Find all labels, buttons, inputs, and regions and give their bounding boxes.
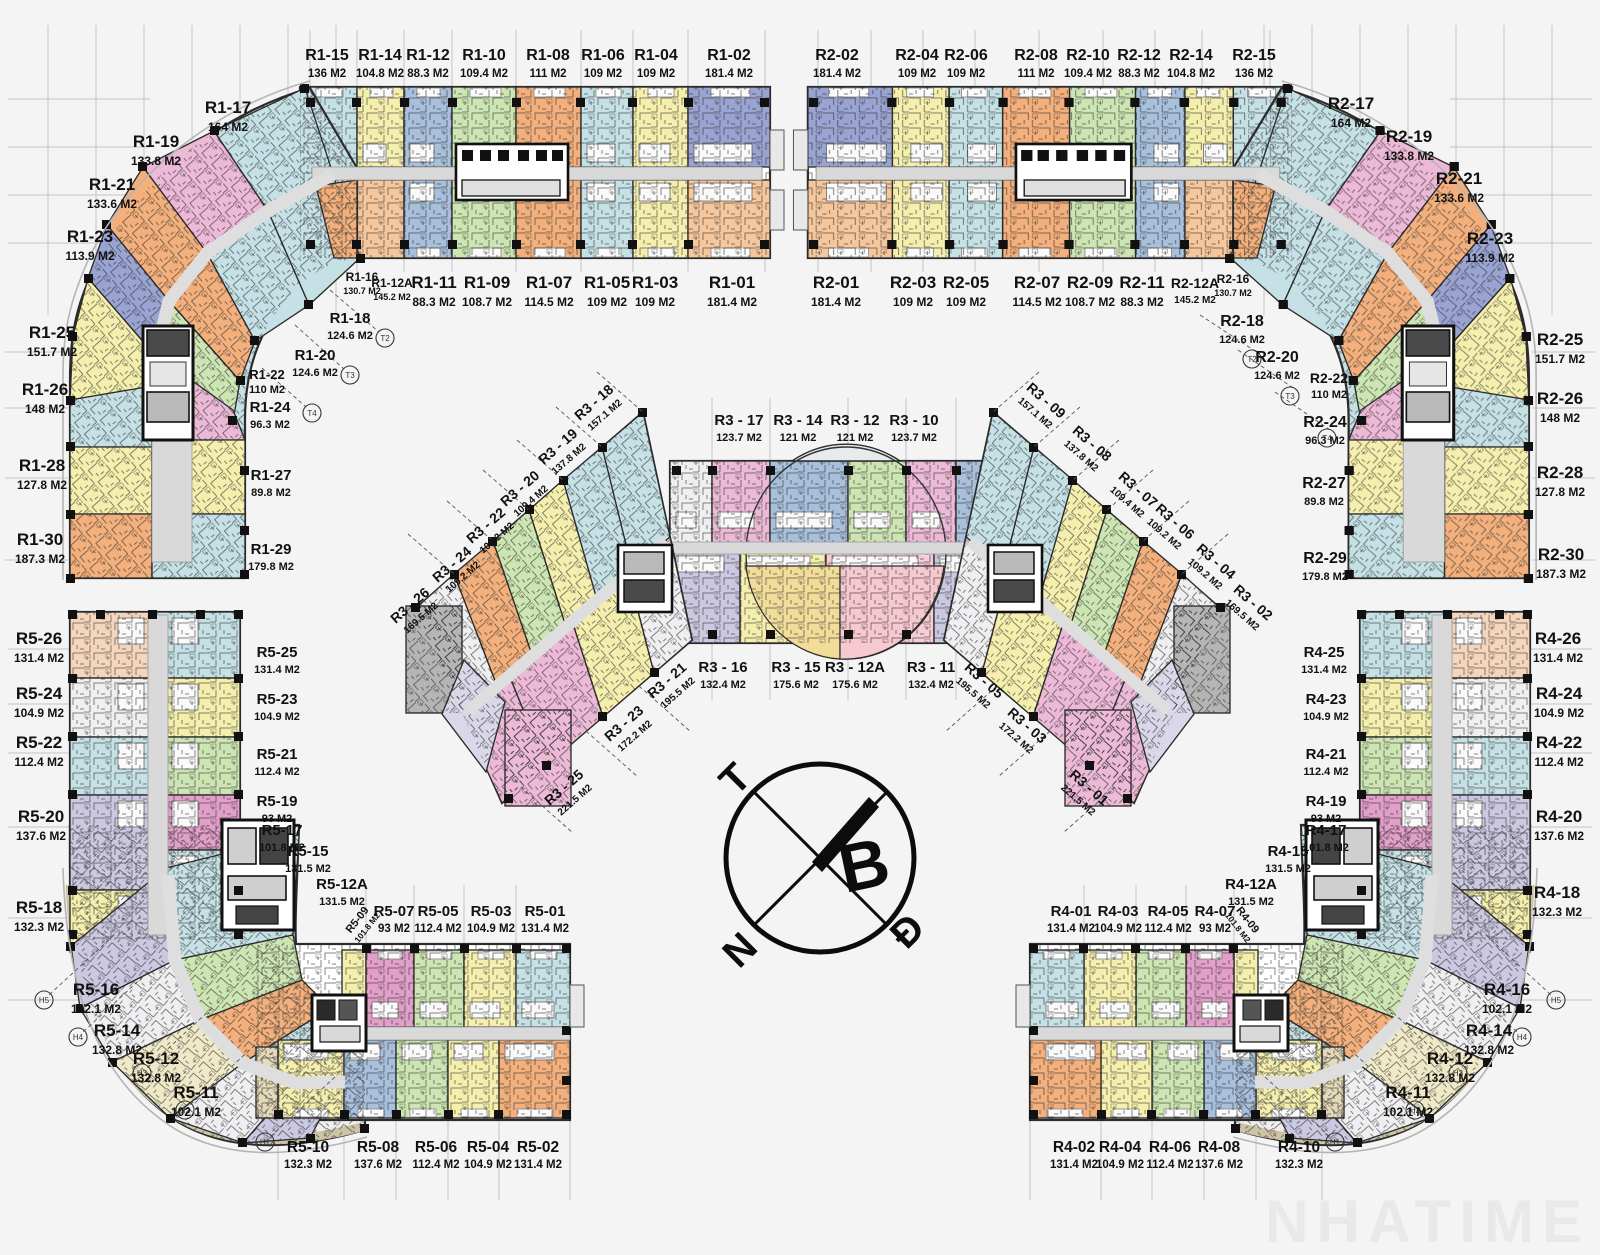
svg-text:104.8 M2: 104.8 M2 (1167, 68, 1215, 80)
svg-text:R1-15: R1-15 (305, 47, 349, 64)
svg-text:R2-04: R2-04 (895, 47, 939, 64)
svg-text:R4-25: R4-25 (1304, 644, 1345, 661)
svg-text:R2-20: R2-20 (1255, 349, 1299, 366)
svg-text:110 M2: 110 M2 (249, 384, 285, 396)
svg-text:R4-23: R4-23 (1306, 691, 1347, 708)
svg-text:111 M2: 111 M2 (1017, 68, 1054, 80)
svg-text:132.3 M2: 132.3 M2 (284, 1159, 332, 1171)
svg-text:88.3 M2: 88.3 M2 (407, 68, 449, 80)
svg-text:R5-21: R5-21 (257, 746, 298, 763)
svg-text:108.7 M2: 108.7 M2 (462, 295, 512, 309)
svg-text:R5-17: R5-17 (262, 822, 303, 839)
svg-text:R4-21: R4-21 (1306, 746, 1347, 763)
svg-text:121 M2: 121 M2 (837, 432, 874, 444)
svg-text:R2-23: R2-23 (1467, 229, 1513, 248)
svg-text:R5-10: R5-10 (287, 1139, 329, 1156)
svg-text:124.6 M2: 124.6 M2 (327, 330, 373, 342)
svg-text:89.8 M2: 89.8 M2 (1304, 496, 1344, 508)
svg-text:112.4 M2: 112.4 M2 (254, 766, 299, 778)
svg-text:145.2 M2: 145.2 M2 (373, 292, 411, 302)
svg-text:T2: T2 (380, 334, 390, 343)
svg-text:132.3 M2: 132.3 M2 (14, 920, 64, 934)
svg-text:R2-08: R2-08 (1014, 47, 1058, 64)
svg-text:R1-07: R1-07 (526, 273, 572, 292)
svg-text:93 M2: 93 M2 (1199, 923, 1231, 935)
svg-text:R5-03: R5-03 (471, 903, 512, 920)
svg-text:R1-06: R1-06 (581, 47, 625, 64)
svg-text:R5-24: R5-24 (16, 684, 63, 703)
svg-text:109.4 M2: 109.4 M2 (1064, 68, 1112, 80)
svg-text:93 M2: 93 M2 (378, 923, 410, 935)
svg-text:113.9 M2: 113.9 M2 (1465, 251, 1515, 265)
svg-text:R1-23: R1-23 (67, 227, 113, 246)
svg-text:121 M2: 121 M2 (780, 432, 817, 444)
svg-text:R1-29: R1-29 (251, 541, 292, 558)
svg-text:132.4 M2: 132.4 M2 (700, 679, 746, 691)
svg-text:96.3 M2: 96.3 M2 (250, 419, 290, 431)
svg-text:133.8 M2: 133.8 M2 (131, 154, 181, 168)
svg-text:181.4 M2: 181.4 M2 (707, 295, 757, 309)
svg-text:124.6 M2: 124.6 M2 (1219, 334, 1265, 346)
svg-text:104.9 M2: 104.9 M2 (1096, 1159, 1144, 1171)
svg-text:R1-01: R1-01 (709, 273, 755, 292)
svg-text:R1-24: R1-24 (250, 399, 292, 416)
svg-text:104.9 M2: 104.9 M2 (467, 923, 515, 935)
svg-text:R2-10: R2-10 (1066, 47, 1110, 64)
svg-text:131.5 M2: 131.5 M2 (285, 863, 331, 875)
svg-text:H5: H5 (39, 996, 50, 1005)
svg-text:113.9 M2: 113.9 M2 (65, 249, 115, 263)
svg-text:124.6 M2: 124.6 M2 (292, 367, 338, 379)
svg-text:109 M2: 109 M2 (947, 68, 985, 80)
svg-text:R2-28: R2-28 (1537, 463, 1583, 482)
svg-text:R1-05: R1-05 (584, 273, 630, 292)
svg-text:R2-12A: R2-12A (1171, 275, 1219, 291)
svg-text:R5-07: R5-07 (374, 903, 415, 920)
svg-text:127.8 M2: 127.8 M2 (17, 478, 67, 492)
svg-text:R2-18: R2-18 (1220, 313, 1264, 330)
svg-text:187.3 M2: 187.3 M2 (15, 552, 65, 566)
svg-text:R4-08: R4-08 (1198, 1139, 1241, 1156)
svg-text:R3 - 16: R3 - 16 (698, 659, 747, 676)
svg-text:R1-12A: R1-12A (371, 276, 413, 290)
svg-text:111 M2: 111 M2 (529, 68, 566, 80)
svg-text:R2-11: R2-11 (1119, 273, 1164, 292)
svg-text:145.2 M2: 145.2 M2 (1174, 295, 1216, 306)
svg-text:R2-22: R2-22 (1310, 370, 1348, 386)
svg-text:123.7 M2: 123.7 M2 (716, 432, 762, 444)
svg-text:H1: H1 (1330, 1138, 1341, 1147)
svg-text:110 M2: 110 M2 (1311, 389, 1347, 401)
svg-text:133.6 M2: 133.6 M2 (87, 197, 137, 211)
svg-text:R1-25: R1-25 (29, 323, 75, 342)
svg-text:R5-14: R5-14 (94, 1021, 141, 1040)
svg-text:131.4 M2: 131.4 M2 (1533, 651, 1583, 665)
svg-text:R1-30: R1-30 (17, 530, 63, 549)
svg-text:R5-08: R5-08 (357, 1139, 400, 1156)
svg-text:R2-15: R2-15 (1232, 47, 1276, 64)
svg-text:R1-14: R1-14 (358, 47, 402, 64)
svg-text:R4-05: R4-05 (1148, 903, 1189, 920)
svg-text:104.9 M2: 104.9 M2 (1303, 711, 1349, 723)
svg-text:109 M2: 109 M2 (635, 295, 675, 309)
svg-text:136 M2: 136 M2 (1235, 68, 1273, 80)
svg-text:R5-06: R5-06 (415, 1139, 458, 1156)
svg-text:148 M2: 148 M2 (1540, 411, 1580, 425)
svg-text:131.4 M2: 131.4 M2 (1047, 923, 1095, 935)
svg-text:R2-16: R2-16 (1217, 272, 1250, 286)
svg-text:131.4 M2: 131.4 M2 (1050, 1159, 1098, 1171)
svg-text:181.4 M2: 181.4 M2 (811, 295, 861, 309)
svg-text:109 M2: 109 M2 (584, 68, 622, 80)
svg-text:109 M2: 109 M2 (946, 295, 986, 309)
svg-text:R5-16: R5-16 (73, 980, 119, 999)
svg-text:R3 - 15: R3 - 15 (771, 659, 820, 676)
svg-text:R4-16: R4-16 (1484, 980, 1530, 999)
svg-text:89.8 M2: 89.8 M2 (251, 487, 291, 499)
svg-text:112.4 M2: 112.4 M2 (14, 755, 64, 769)
svg-text:R3 - 12: R3 - 12 (830, 412, 879, 429)
svg-text:H4: H4 (1517, 1033, 1528, 1042)
svg-text:R2-14: R2-14 (1169, 47, 1213, 64)
svg-text:R4-01: R4-01 (1051, 903, 1092, 920)
svg-text:88.3 M2: 88.3 M2 (1120, 295, 1164, 309)
svg-text:R5-12A: R5-12A (316, 876, 368, 893)
svg-text:114.5 M2: 114.5 M2 (1012, 295, 1062, 309)
svg-text:164 M2: 164 M2 (208, 120, 248, 134)
svg-text:R1-10: R1-10 (462, 47, 506, 64)
svg-text:R4-20: R4-20 (1536, 807, 1582, 826)
svg-text:108.7 M2: 108.7 M2 (1065, 295, 1115, 309)
svg-text:R4-19: R4-19 (1306, 793, 1347, 810)
svg-text:R4-18: R4-18 (1534, 883, 1580, 902)
svg-text:131.4 M2: 131.4 M2 (514, 1159, 562, 1171)
svg-text:131.5 M2: 131.5 M2 (319, 896, 365, 908)
svg-text:R1-09: R1-09 (464, 273, 510, 292)
svg-text:R5-18: R5-18 (16, 898, 62, 917)
svg-text:R4-22: R4-22 (1536, 733, 1582, 752)
svg-text:112.4 M2: 112.4 M2 (1146, 1159, 1193, 1171)
svg-text:131.4 M2: 131.4 M2 (521, 923, 569, 935)
svg-text:179.8 M2: 179.8 M2 (248, 561, 294, 573)
svg-text:109.4 M2: 109.4 M2 (460, 68, 508, 80)
svg-text:148 M2: 148 M2 (25, 402, 65, 416)
svg-text:R4-06: R4-06 (1149, 1139, 1192, 1156)
svg-text:112.4 M2: 112.4 M2 (1303, 766, 1348, 778)
svg-text:R5-01: R5-01 (525, 903, 566, 920)
svg-text:131.4 M2: 131.4 M2 (14, 651, 64, 665)
svg-text:136 M2: 136 M2 (308, 68, 346, 80)
svg-text:104.9 M2: 104.9 M2 (254, 711, 300, 723)
svg-text:R2-07: R2-07 (1014, 273, 1060, 292)
svg-text:104.9 M2: 104.9 M2 (464, 1159, 512, 1171)
svg-text:R4-15: R4-15 (1268, 843, 1309, 860)
svg-text:124.6 M2: 124.6 M2 (1254, 370, 1300, 382)
svg-text:133.8 M2: 133.8 M2 (1384, 149, 1434, 163)
svg-text:175.6 M2: 175.6 M2 (832, 679, 878, 691)
svg-text:R1-20: R1-20 (295, 347, 336, 364)
svg-text:175.6 M2: 175.6 M2 (773, 679, 819, 691)
svg-text:123.7 M2: 123.7 M2 (891, 432, 937, 444)
svg-text:88.3 M2: 88.3 M2 (412, 295, 456, 309)
svg-text:88.3 M2: 88.3 M2 (1118, 68, 1160, 80)
svg-text:112.4 M2: 112.4 M2 (1534, 755, 1584, 769)
svg-text:131.4 M2: 131.4 M2 (1301, 664, 1347, 676)
svg-text:109 M2: 109 M2 (893, 295, 933, 309)
svg-text:R5-25: R5-25 (257, 644, 298, 661)
svg-text:112.4 M2: 112.4 M2 (412, 1159, 459, 1171)
svg-text:R3 - 12A: R3 - 12A (825, 659, 885, 676)
svg-text:137.6 M2: 137.6 M2 (1534, 829, 1584, 843)
svg-text:R1-28: R1-28 (19, 456, 65, 475)
svg-text:R5-02: R5-02 (517, 1139, 559, 1156)
svg-text:R2-02: R2-02 (815, 47, 859, 64)
svg-text:R4-26: R4-26 (1535, 629, 1581, 648)
svg-text:R5-15: R5-15 (288, 843, 329, 860)
svg-text:181.4 M2: 181.4 M2 (705, 68, 753, 80)
svg-text:131.5 M2: 131.5 M2 (1265, 863, 1311, 875)
svg-text:R5-23: R5-23 (257, 691, 298, 708)
svg-text:R1-21: R1-21 (89, 175, 135, 194)
svg-text:R2-27: R2-27 (1302, 475, 1346, 492)
svg-text:104.9 M2: 104.9 M2 (1094, 923, 1142, 935)
svg-text:R4-11: R4-11 (1385, 1083, 1430, 1102)
svg-text:109 M2: 109 M2 (898, 68, 936, 80)
svg-text:104.9 M2: 104.9 M2 (14, 706, 64, 720)
svg-text:H1: H1 (260, 1138, 271, 1147)
svg-text:R4-17: R4-17 (1306, 822, 1347, 839)
svg-text:R4-12: R4-12 (1427, 1049, 1473, 1068)
svg-text:132.8 M2: 132.8 M2 (1425, 1071, 1475, 1085)
svg-text:96.3 M2: 96.3 M2 (1305, 435, 1345, 447)
svg-text:R5-12: R5-12 (133, 1049, 179, 1068)
svg-text:112.4 M2: 112.4 M2 (1144, 923, 1191, 935)
svg-text:R5-05: R5-05 (418, 903, 459, 920)
svg-text:R2-29: R2-29 (1303, 550, 1347, 567)
svg-text:R2-19: R2-19 (1386, 127, 1432, 146)
svg-text:R4-02: R4-02 (1053, 1139, 1095, 1156)
svg-text:137.6 M2: 137.6 M2 (354, 1159, 402, 1171)
svg-text:132.4 M2: 132.4 M2 (908, 679, 954, 691)
svg-text:R1-11: R1-11 (411, 273, 456, 292)
svg-text:R2-09: R2-09 (1067, 273, 1113, 292)
svg-text:102.1 M2: 102.1 M2 (1383, 1105, 1433, 1119)
svg-text:R1-17: R1-17 (205, 98, 251, 117)
svg-text:R3 - 10: R3 - 10 (889, 412, 938, 429)
svg-text:R1-08: R1-08 (526, 47, 570, 64)
svg-text:109 M2: 109 M2 (637, 68, 675, 80)
svg-text:132.3 M2: 132.3 M2 (1275, 1159, 1323, 1171)
svg-text:R3 - 14: R3 - 14 (773, 412, 823, 429)
svg-text:R1-27: R1-27 (251, 467, 292, 484)
svg-text:R4-03: R4-03 (1098, 903, 1139, 920)
svg-text:130.7 M2: 130.7 M2 (1214, 288, 1252, 298)
svg-text:R4-10: R4-10 (1278, 1139, 1320, 1156)
svg-text:112.4 M2: 112.4 M2 (414, 923, 461, 935)
svg-text:R1-22: R1-22 (249, 367, 284, 382)
svg-text:R5-04: R5-04 (467, 1139, 510, 1156)
svg-text:131.4 M2: 131.4 M2 (254, 664, 300, 676)
svg-text:133.6 M2: 133.6 M2 (1434, 191, 1484, 205)
svg-text:R1-19: R1-19 (133, 132, 179, 151)
svg-text:T4: T4 (307, 409, 317, 418)
svg-text:R3 - 11: R3 - 11 (907, 659, 955, 676)
svg-text:104.8 M2: 104.8 M2 (356, 68, 404, 80)
svg-text:R2-26: R2-26 (1537, 389, 1583, 408)
svg-text:R1-12: R1-12 (406, 47, 450, 64)
svg-text:R5-26: R5-26 (16, 629, 62, 648)
svg-text:101.8 M2: 101.8 M2 (1303, 842, 1349, 854)
svg-text:R4-07: R4-07 (1195, 903, 1236, 920)
svg-text:R2-12: R2-12 (1117, 47, 1161, 64)
svg-text:181.4 M2: 181.4 M2 (813, 68, 861, 80)
svg-text:R4-24: R4-24 (1536, 684, 1583, 703)
svg-text:127.8 M2: 127.8 M2 (1535, 485, 1585, 499)
svg-text:R5-22: R5-22 (16, 733, 62, 752)
svg-text:109 M2: 109 M2 (587, 295, 627, 309)
svg-text:164 M2: 164 M2 (1331, 116, 1371, 130)
svg-text:R1-04: R1-04 (634, 47, 678, 64)
svg-text:137.6 M2: 137.6 M2 (16, 829, 66, 843)
svg-text:102.1 M2: 102.1 M2 (71, 1002, 121, 1016)
svg-text:R5-20: R5-20 (18, 807, 64, 826)
svg-text:R2-17: R2-17 (1328, 94, 1374, 113)
svg-text:R5-11: R5-11 (173, 1083, 218, 1102)
svg-text:R2-24: R2-24 (1303, 414, 1347, 431)
svg-text:NHATIME: NHATIME (1265, 1188, 1590, 1255)
svg-text:R4-14: R4-14 (1466, 1021, 1513, 1040)
svg-text:R2-21: R2-21 (1436, 169, 1482, 188)
svg-text:R2-05: R2-05 (943, 273, 989, 292)
svg-text:102.1 M2: 102.1 M2 (1482, 1002, 1532, 1016)
svg-text:R3 - 17: R3 - 17 (714, 412, 763, 429)
svg-text:R2-03: R2-03 (890, 273, 936, 292)
svg-text:R4-04: R4-04 (1099, 1139, 1142, 1156)
svg-text:179.8 M2: 179.8 M2 (1302, 571, 1348, 583)
svg-text:102.1 M2: 102.1 M2 (171, 1105, 221, 1119)
svg-text:132.3 M2: 132.3 M2 (1532, 905, 1582, 919)
svg-text:R1-03: R1-03 (632, 273, 678, 292)
svg-text:R5-19: R5-19 (257, 793, 298, 810)
svg-text:R2-06: R2-06 (944, 47, 988, 64)
svg-text:151.7 M2: 151.7 M2 (27, 345, 77, 359)
svg-text:H4: H4 (73, 1033, 84, 1042)
svg-text:114.5 M2: 114.5 M2 (524, 295, 574, 309)
svg-text:137.6 M2: 137.6 M2 (1195, 1159, 1243, 1171)
svg-text:T3: T3 (345, 371, 355, 380)
svg-text:151.7 M2: 151.7 M2 (1535, 352, 1585, 366)
svg-text:R1-18: R1-18 (330, 310, 371, 327)
svg-text:R2-30: R2-30 (1538, 545, 1584, 564)
svg-text:R4-12A: R4-12A (1225, 876, 1277, 893)
svg-text:R1-02: R1-02 (707, 47, 751, 64)
svg-text:H5: H5 (1551, 996, 1562, 1005)
svg-text:R2-25: R2-25 (1537, 330, 1583, 349)
svg-text:R1-26: R1-26 (22, 380, 68, 399)
svg-text:187.3 M2: 187.3 M2 (1536, 567, 1586, 581)
svg-text:104.9 M2: 104.9 M2 (1534, 706, 1584, 720)
svg-text:R2-01: R2-01 (813, 273, 859, 292)
